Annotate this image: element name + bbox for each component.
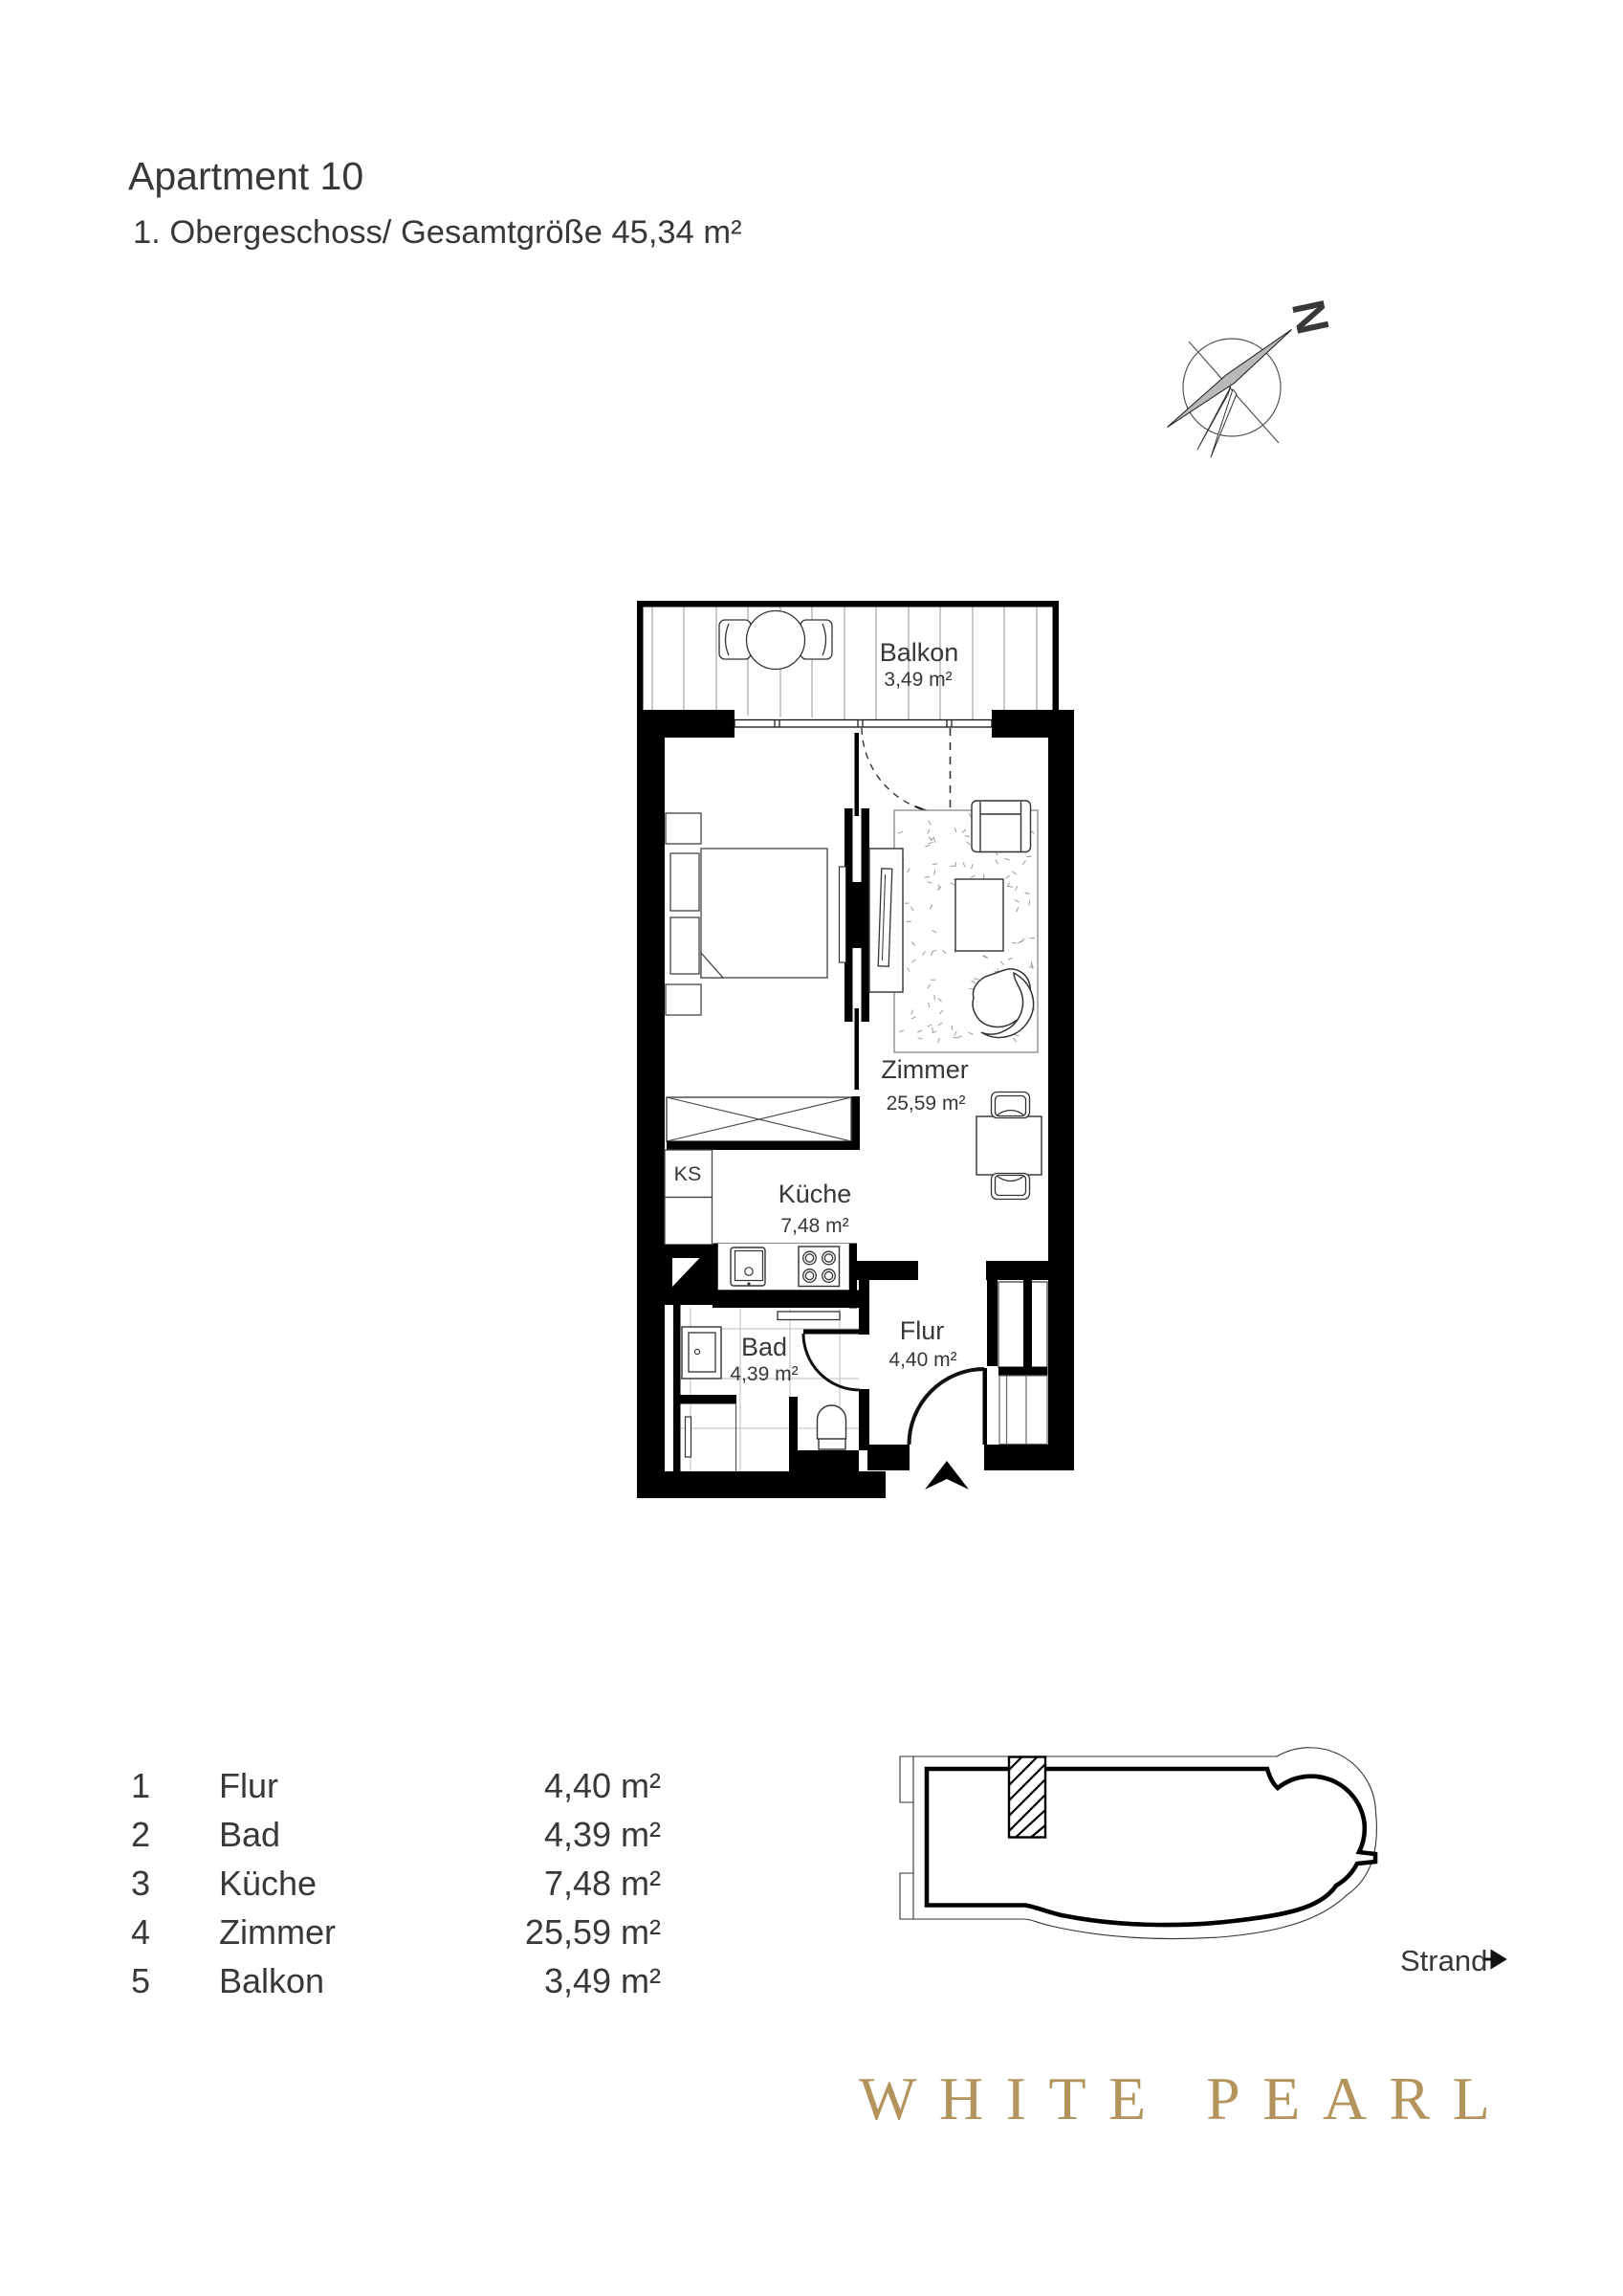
svg-text:4,39 m²: 4,39 m² [544,1815,661,1854]
svg-text:25,59 m²: 25,59 m² [525,1912,661,1952]
svg-text:4,40 m²: 4,40 m² [544,1766,661,1805]
svg-text:4,39 m²: 4,39 m² [730,1363,798,1385]
svg-text:KS: KS [674,1162,702,1185]
svg-text:3,49 m²: 3,49 m² [884,669,952,691]
svg-text:Zimmer: Zimmer [881,1055,968,1084]
svg-text:Strand: Strand [1400,1944,1487,1977]
svg-text:WHITE PEARL: WHITE PEARL [859,2064,1512,2132]
svg-text:1. Obergeschoss/ Gesamtgröße 4: 1. Obergeschoss/ Gesamtgröße 45,34 m² [133,214,742,251]
svg-text:1: 1 [131,1766,150,1805]
svg-text:5: 5 [131,1961,150,2000]
svg-text:25,59 m²: 25,59 m² [887,1093,966,1115]
svg-text:7,48 m²: 7,48 m² [544,1864,661,1903]
svg-text:Apartment 10: Apartment 10 [128,154,363,198]
svg-text:Flur: Flur [900,1316,945,1345]
svg-text:Balkon: Balkon [219,1961,324,2000]
svg-text:Balkon: Balkon [880,638,959,667]
svg-text:Bad: Bad [741,1333,787,1361]
svg-text:2: 2 [131,1815,150,1854]
svg-text:Flur: Flur [219,1766,278,1805]
svg-text:4,40 m²: 4,40 m² [888,1349,956,1371]
svg-text:3,49 m²: 3,49 m² [544,1961,661,2000]
svg-text:Bad: Bad [219,1815,280,1854]
svg-text:3: 3 [131,1864,150,1903]
svg-text:7,48 m²: 7,48 m² [780,1215,848,1237]
svg-text:Küche: Küche [219,1864,317,1903]
svg-text:Küche: Küche [779,1180,852,1208]
svg-text:4: 4 [131,1912,150,1952]
svg-text:Zimmer: Zimmer [219,1912,336,1952]
